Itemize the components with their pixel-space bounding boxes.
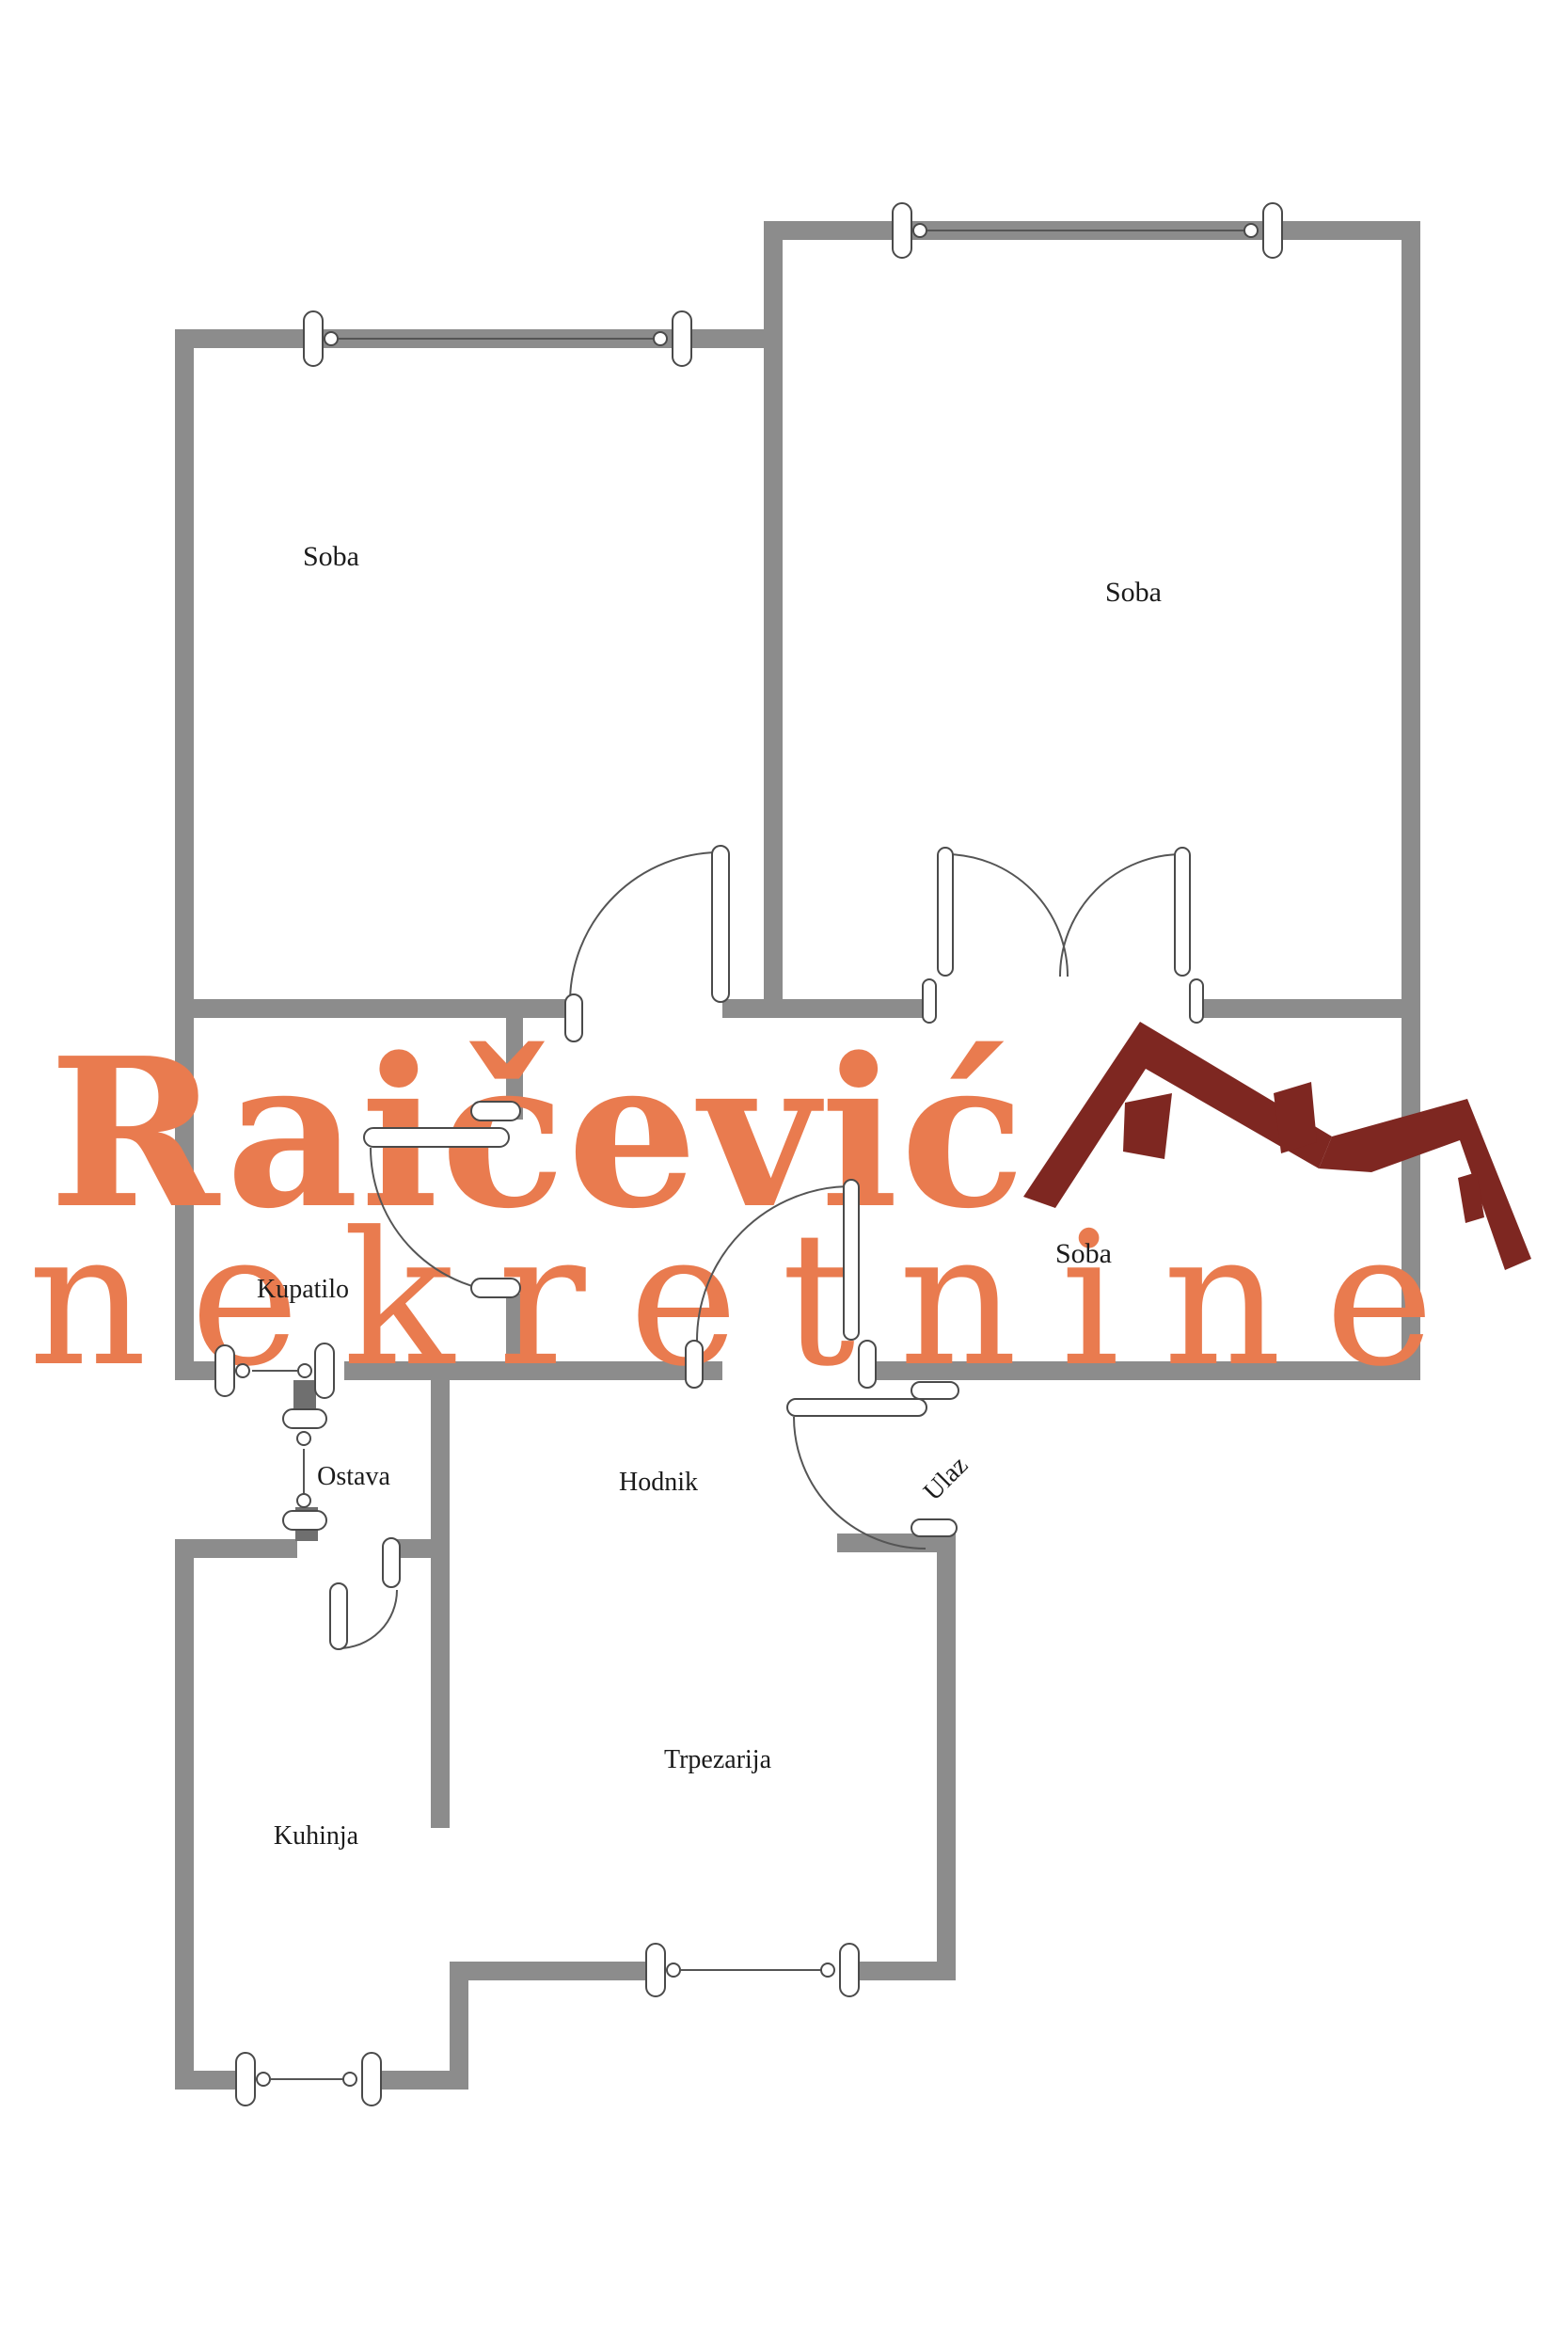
- floor-plan: Raičević nekretnine: [0, 0, 1568, 2352]
- room-label-kuhinja: Kuhinja: [274, 1821, 358, 1851]
- door-post-icon: [858, 1340, 877, 1389]
- door-leaf-icon: [1174, 847, 1191, 977]
- door-post-icon: [1189, 978, 1204, 1024]
- door-arc-ulaz: [794, 1417, 926, 1549]
- door-post-icon: [470, 1278, 521, 1298]
- window-post-icon: [361, 2052, 382, 2106]
- window-pivot-icon: [256, 2072, 271, 2087]
- window-pivot-icon: [296, 1431, 311, 1446]
- room-label-soba-middle: Soba: [1055, 1238, 1112, 1270]
- door-post-icon: [382, 1537, 401, 1588]
- door-post-icon: [564, 993, 583, 1042]
- window-pivot-icon: [1243, 223, 1259, 238]
- window-pivot-icon: [296, 1493, 311, 1508]
- door-arc-double-left: [945, 854, 1068, 977]
- window-post-icon: [892, 202, 912, 259]
- room-label-trpezarija: Trpezarija: [664, 1745, 771, 1775]
- window-post-icon: [282, 1510, 327, 1531]
- window-pivot-icon: [666, 1963, 681, 1978]
- window-pivot-icon: [653, 331, 668, 346]
- room-label-kupatilo: Kupatilo: [257, 1275, 349, 1305]
- door-window-linework: [0, 0, 1568, 2352]
- window-pivot-icon: [235, 1363, 250, 1378]
- window-pivot-icon: [912, 223, 927, 238]
- window-pivot-icon: [820, 1963, 835, 1978]
- window-post-icon: [1262, 202, 1283, 259]
- door-arc-soba-middle: [697, 1186, 851, 1341]
- door-arc-double-right: [1060, 854, 1182, 977]
- window-post-icon: [214, 1344, 235, 1397]
- window-post-icon: [672, 310, 692, 367]
- door-leaf-icon: [843, 1179, 860, 1341]
- door-post-icon: [470, 1101, 521, 1121]
- window-post-icon: [645, 1943, 666, 1997]
- window-post-icon: [303, 310, 324, 367]
- door-arc-soba-left: [570, 852, 721, 1003]
- room-label-hodnik: Hodnik: [619, 1468, 698, 1498]
- door-post-icon: [922, 978, 937, 1024]
- door-leaf-icon: [937, 847, 954, 977]
- door-leaf-icon: [786, 1398, 927, 1417]
- room-label-ostava: Ostava: [317, 1462, 390, 1492]
- window-pivot-icon: [342, 2072, 357, 2087]
- door-post-icon: [911, 1381, 959, 1400]
- window-post-icon: [235, 2052, 256, 2106]
- door-post-icon: [911, 1518, 958, 1537]
- door-leaf-icon: [363, 1127, 510, 1148]
- window-pivot-icon: [324, 331, 339, 346]
- window-post-icon: [314, 1343, 335, 1399]
- window-pivot-icon: [297, 1363, 312, 1378]
- room-label-soba-left: Soba: [303, 541, 359, 573]
- window-post-icon: [839, 1943, 860, 1997]
- door-leaf-icon: [711, 845, 730, 1003]
- window-post-icon: [282, 1408, 327, 1429]
- room-label-soba-right: Soba: [1105, 577, 1162, 609]
- door-post-icon: [685, 1340, 704, 1389]
- door-arc-kupatilo: [371, 1148, 515, 1293]
- door-leaf-icon: [329, 1582, 348, 1650]
